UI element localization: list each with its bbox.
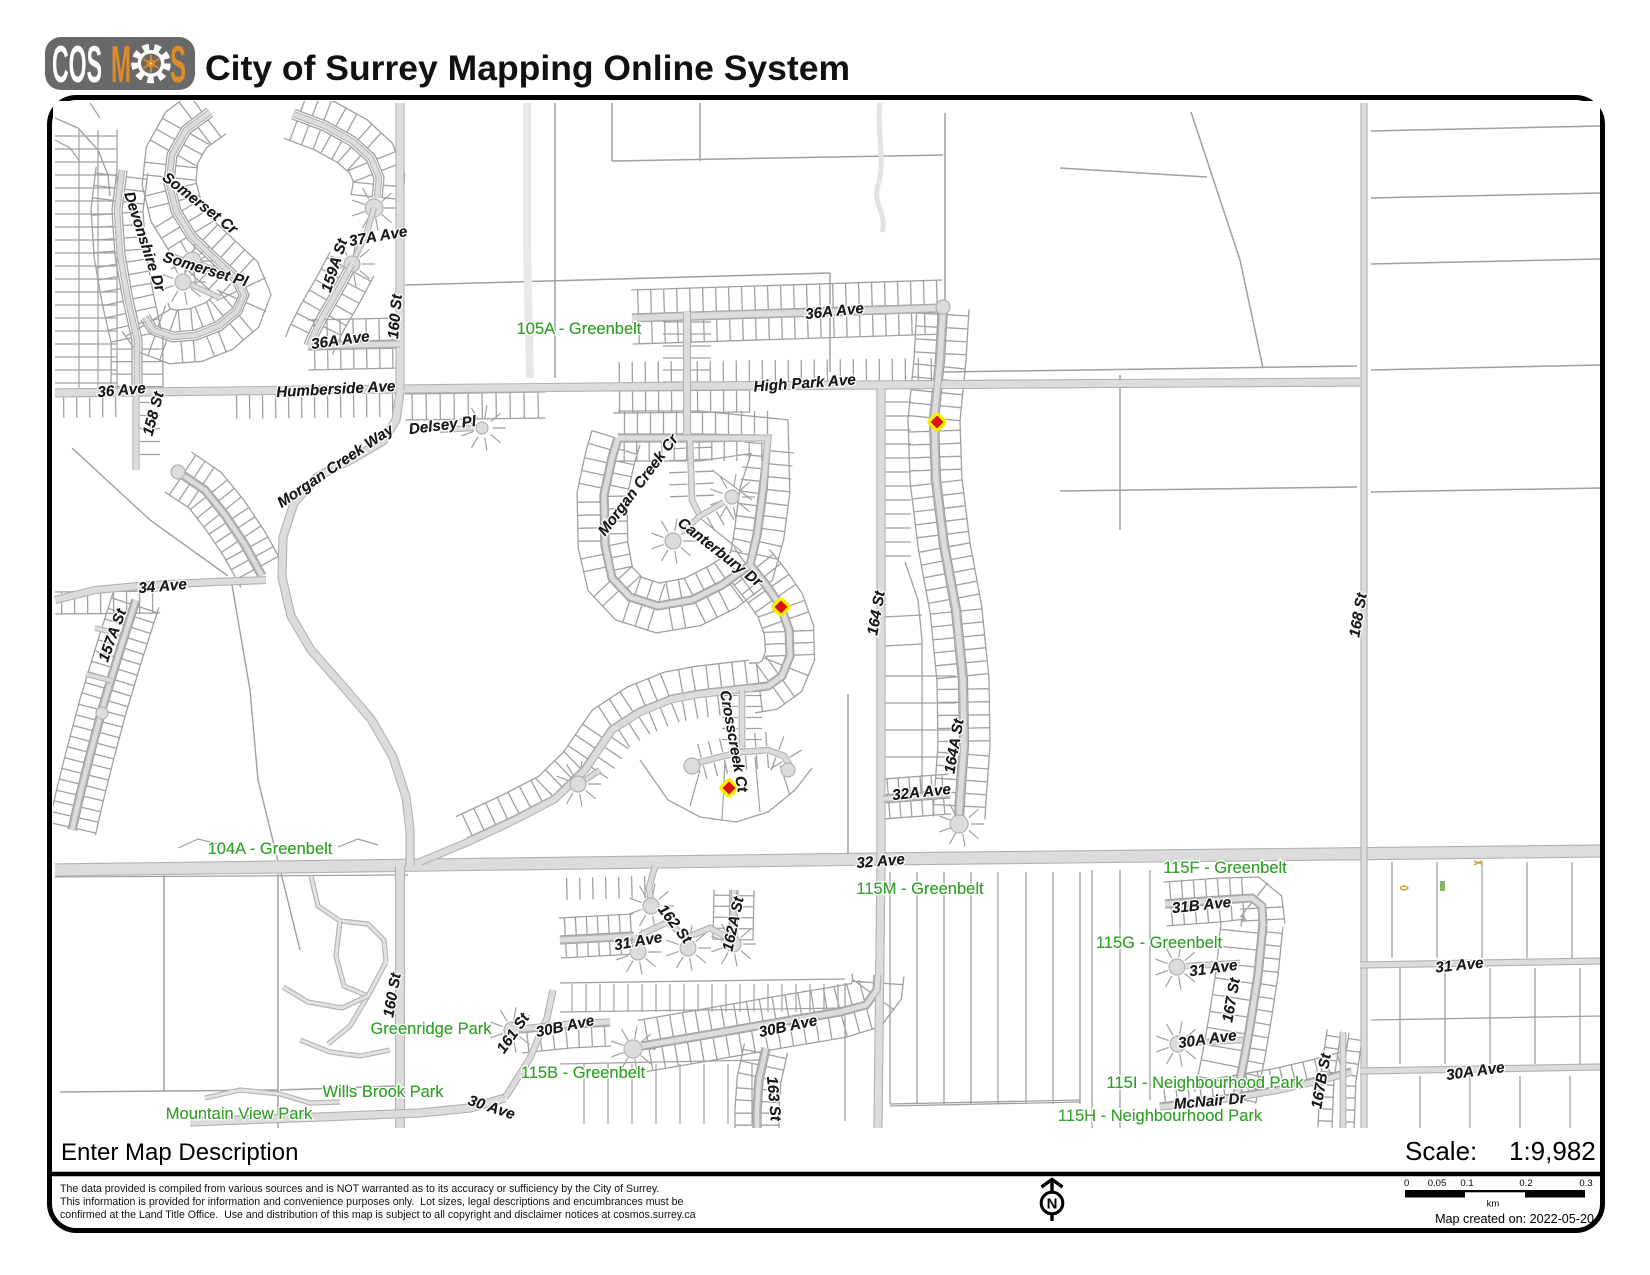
svg-text:1:9,982: 1:9,982 [1509,1136,1596,1166]
svg-text:0.1: 0.1 [1460,1178,1473,1189]
svg-text:M: M [111,36,131,94]
svg-text:104A - Greenbelt: 104A - Greenbelt [208,840,333,858]
svg-text:Enter Map Description: Enter Map Description [61,1139,298,1166]
svg-text:City of Surrey Mapping Online: City of Surrey Mapping Online System [205,48,850,88]
svg-text:km: km [1487,1199,1500,1210]
svg-text:105A - Greenbelt: 105A - Greenbelt [517,320,642,338]
svg-text:Map created on: 2022-05-20: Map created on: 2022-05-20 [1435,1212,1594,1226]
svg-text:115B - Greenbelt: 115B - Greenbelt [521,1064,646,1082]
svg-text:Wills Brook Park: Wills Brook Park [322,1083,444,1101]
svg-text:confirmed at the Land Title Of: confirmed at the Land Title Office. Use … [60,1209,696,1221]
svg-text:The data provided is compiled: The data provided is compiled from vario… [60,1183,659,1195]
svg-text:0.05: 0.05 [1428,1178,1447,1189]
svg-text:0.2: 0.2 [1519,1178,1532,1189]
svg-text:Greenridge Park: Greenridge Park [370,1020,492,1038]
svg-text:S: S [170,36,186,94]
svg-text:115M - Greenbelt: 115M - Greenbelt [856,880,984,898]
svg-text:115G - Greenbelt: 115G - Greenbelt [1096,934,1223,952]
svg-text:115H - Neighbourhood Park: 115H - Neighbourhood Park [1058,1107,1263,1125]
svg-text:115F - Greenbelt: 115F - Greenbelt [1163,859,1287,877]
svg-text:0.3: 0.3 [1579,1178,1592,1189]
svg-text:0: 0 [1404,1178,1409,1189]
svg-text:115I - Neighbourhood Park: 115I - Neighbourhood Park [1107,1074,1305,1092]
svg-text:COS: COS [52,36,102,94]
svg-text:Scale:: Scale: [1405,1136,1477,1166]
svg-text:Mountain View Park: Mountain View Park [166,1105,313,1123]
svg-text:N: N [1047,1196,1058,1213]
svg-text:This information is provided f: This information is provided for informa… [60,1196,684,1208]
